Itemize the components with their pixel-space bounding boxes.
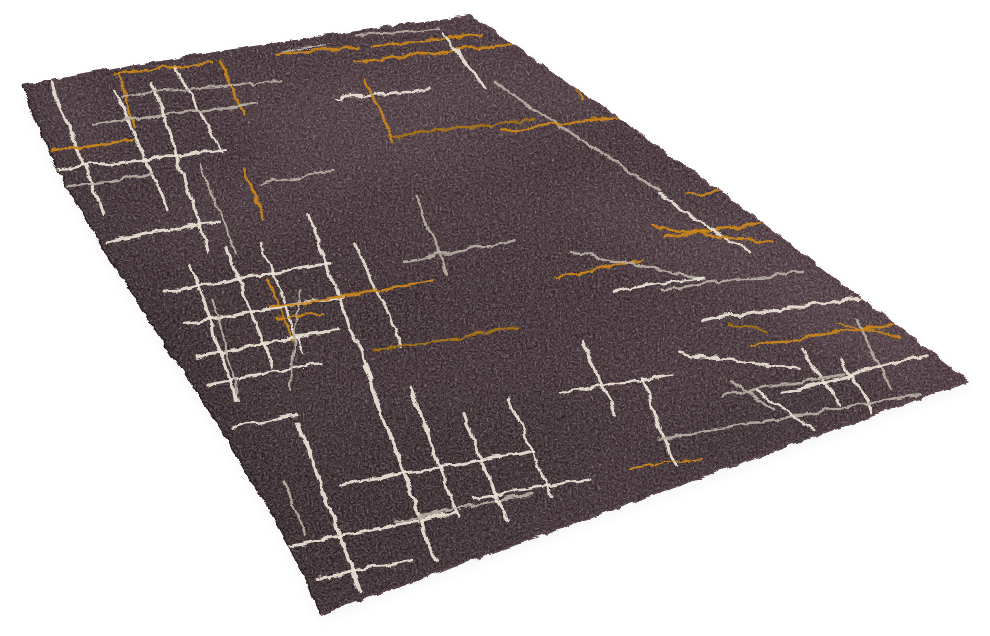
rug-pattern-line [685, 163, 909, 193]
product-image [0, 0, 990, 636]
rug-image [0, 0, 990, 636]
rug [0, 0, 990, 636]
